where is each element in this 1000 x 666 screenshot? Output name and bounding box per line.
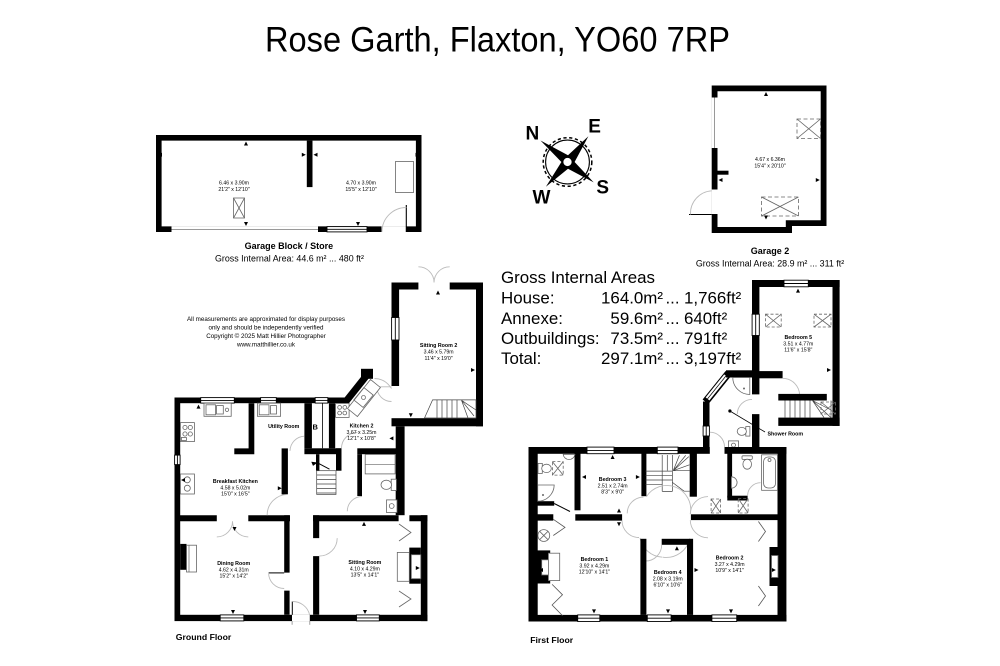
svg-text:3.51 x 4.77m: 3.51 x 4.77m bbox=[783, 341, 813, 347]
svg-text:59.6m²: 59.6m² bbox=[610, 309, 663, 328]
svg-text:21'2" x 12'10": 21'2" x 12'10" bbox=[218, 187, 249, 193]
svg-text:B: B bbox=[312, 423, 318, 432]
svg-text:4.58 x 5.02m: 4.58 x 5.02m bbox=[220, 485, 250, 491]
svg-text:Kitchen 2: Kitchen 2 bbox=[350, 424, 374, 430]
svg-text:...: ... bbox=[665, 289, 679, 308]
svg-text:15'0" x 16'5": 15'0" x 16'5" bbox=[221, 492, 250, 498]
svg-text:www.matthillier.co.uk: www.matthillier.co.uk bbox=[236, 342, 296, 349]
svg-text:Annexe:: Annexe: bbox=[501, 309, 563, 328]
svg-text:3.27 x 4.29m: 3.27 x 4.29m bbox=[715, 562, 745, 568]
svg-text:Sitting Room: Sitting Room bbox=[348, 560, 381, 566]
svg-text:4.67 x 6.36m: 4.67 x 6.36m bbox=[755, 157, 785, 163]
svg-text:3.92 x 4.29m: 3.92 x 4.29m bbox=[579, 563, 609, 569]
svg-text:Bedroom 3: Bedroom 3 bbox=[599, 477, 627, 483]
svg-text:640ft²: 640ft² bbox=[684, 309, 728, 328]
svg-text:Dining Room: Dining Room bbox=[217, 561, 250, 567]
svg-text:4.62 x 4.31m: 4.62 x 4.31m bbox=[219, 567, 249, 573]
svg-text:Utility Room: Utility Room bbox=[268, 424, 299, 430]
svg-text:164.0m²: 164.0m² bbox=[601, 289, 663, 308]
svg-text:13'5" x 14'1": 13'5" x 14'1" bbox=[351, 573, 380, 579]
svg-text:297.1m²: 297.1m² bbox=[601, 349, 663, 368]
svg-text:House:: House: bbox=[501, 289, 555, 308]
svg-text:Outbuildings:: Outbuildings: bbox=[501, 329, 600, 348]
svg-text:Shower Room: Shower Room bbox=[768, 432, 804, 438]
svg-text:Bedroom 2: Bedroom 2 bbox=[716, 556, 744, 562]
svg-text:W: W bbox=[533, 188, 551, 209]
svg-text:First Floor: First Floor bbox=[530, 635, 574, 645]
svg-text:...: ... bbox=[665, 329, 679, 348]
svg-text:Garage Block / Store: Garage Block / Store bbox=[245, 241, 334, 251]
svg-text:2.08 x 3.19m: 2.08 x 3.19m bbox=[653, 576, 683, 582]
svg-text:S: S bbox=[596, 178, 609, 199]
svg-text:Gross Internal Areas: Gross Internal Areas bbox=[501, 268, 655, 287]
svg-text:Bedroom 1: Bedroom 1 bbox=[581, 557, 609, 563]
svg-text:...: ... bbox=[665, 309, 679, 328]
svg-text:Bedroom 5: Bedroom 5 bbox=[784, 335, 812, 341]
svg-text:Bedroom 4: Bedroom 4 bbox=[654, 570, 682, 576]
svg-text:Gross Internal Area: 44.6 m² .: Gross Internal Area: 44.6 m² ... 480 ft² bbox=[215, 254, 364, 264]
svg-text:11'4" x 19'0": 11'4" x 19'0" bbox=[425, 356, 453, 362]
svg-text:11'6" x 15'8": 11'6" x 15'8" bbox=[784, 348, 812, 354]
svg-text:only and should be independent: only and should be independently verifie… bbox=[208, 325, 324, 332]
svg-text:791ft²: 791ft² bbox=[684, 329, 728, 348]
svg-text:1,766ft²: 1,766ft² bbox=[684, 289, 742, 308]
svg-text:3.67 x 3.25m: 3.67 x 3.25m bbox=[347, 430, 377, 436]
svg-text:Breakfast Kitchen: Breakfast Kitchen bbox=[213, 479, 258, 485]
svg-text:All measurements are approxima: All measurements are approximated for di… bbox=[187, 316, 345, 323]
svg-text:6'10" x 10'6": 6'10" x 10'6" bbox=[653, 583, 682, 589]
svg-text:15'4" x 20'10": 15'4" x 20'10" bbox=[754, 163, 785, 169]
svg-text:8'3" x 9'0": 8'3" x 9'0" bbox=[601, 490, 624, 496]
svg-text:73.5m²: 73.5m² bbox=[610, 329, 663, 348]
svg-text:3.46 x 5.79m: 3.46 x 5.79m bbox=[424, 350, 454, 356]
svg-text:4.70 x 3.90m: 4.70 x 3.90m bbox=[346, 181, 376, 187]
svg-text:3,197ft²: 3,197ft² bbox=[684, 349, 742, 368]
svg-text:...: ... bbox=[665, 349, 679, 368]
svg-text:Sitting Room 2: Sitting Room 2 bbox=[420, 343, 457, 349]
svg-text:Garage 2: Garage 2 bbox=[751, 246, 790, 256]
svg-text:15'5" x 12'10": 15'5" x 12'10" bbox=[345, 187, 376, 193]
svg-text:Copyright © 2025 Matt Hillier: Copyright © 2025 Matt Hillier Photograph… bbox=[206, 333, 326, 340]
svg-text:12'1" x 10'8": 12'1" x 10'8" bbox=[347, 436, 376, 442]
svg-text:Ground Floor: Ground Floor bbox=[176, 632, 232, 642]
svg-text:10'9" x 14'1": 10'9" x 14'1" bbox=[715, 568, 744, 574]
svg-text:Rose Garth, Flaxton, YO60 7RP: Rose Garth, Flaxton, YO60 7RP bbox=[265, 21, 730, 60]
svg-text:N: N bbox=[526, 123, 540, 144]
svg-text:Total:: Total: bbox=[501, 349, 541, 368]
svg-text:6.46 x 3.90m: 6.46 x 3.90m bbox=[219, 181, 249, 187]
svg-text:E: E bbox=[588, 116, 601, 137]
svg-text:4.10 x 4.29m: 4.10 x 4.29m bbox=[350, 566, 380, 572]
svg-text:12'10" x 14'1": 12'10" x 14'1" bbox=[579, 570, 610, 576]
svg-text:15'2" x 14'2": 15'2" x 14'2" bbox=[219, 574, 248, 580]
svg-text:Gross Internal Area: 28.9 m² .: Gross Internal Area: 28.9 m² ... 311 ft² bbox=[696, 259, 844, 269]
svg-text:2.51 x 2.74m: 2.51 x 2.74m bbox=[598, 483, 628, 489]
